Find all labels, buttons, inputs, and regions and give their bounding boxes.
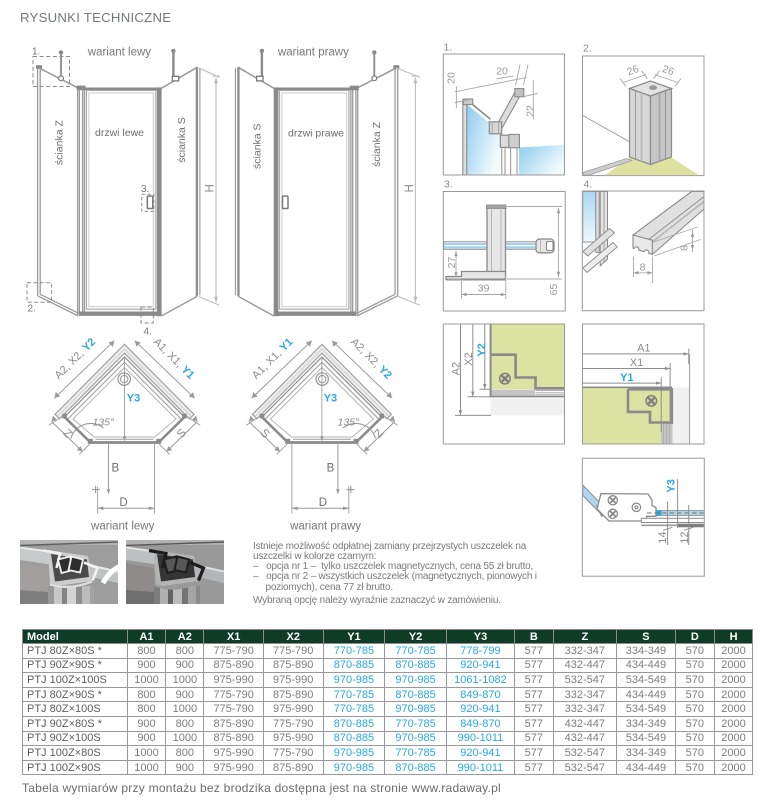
svg-text:14: 14 [657,531,669,543]
svg-text:drzwi prawe: drzwi prawe [288,128,344,140]
svg-text:3.: 3. [141,184,149,195]
svg-text:wariant lewy: wariant lewy [87,47,152,59]
svg-text:H: H [205,184,217,192]
svg-text:Y3: Y3 [127,393,140,405]
svg-text:ścianka S: ścianka S [176,117,188,163]
svg-text:ścianka Z: ścianka Z [371,121,383,167]
svg-text:wariant lewy: wariant lewy [90,521,155,533]
svg-text:A1: A1 [637,343,650,355]
svg-text:20: 20 [446,72,458,84]
svg-text:8: 8 [679,245,691,251]
svg-text:D: D [319,497,327,509]
svg-text:X2: X2 [463,352,475,365]
svg-text:A2, X2, Y2: A2, X2, Y2 [53,336,99,382]
svg-text:4.: 4. [144,327,152,338]
svg-text:Y3: Y3 [666,479,678,492]
svg-text:12: 12 [679,531,691,543]
svg-text:ścianka S: ścianka S [252,123,264,169]
svg-text:135°: 135° [93,417,115,429]
svg-text:Z: Z [60,427,73,440]
svg-text:D: D [119,497,127,509]
svg-text:8: 8 [640,262,646,274]
svg-text:A2, X2, Y2: A2, X2, Y2 [348,336,394,382]
svg-text:Y3: Y3 [324,393,337,405]
svg-text:27: 27 [446,257,458,269]
svg-text:S: S [175,427,189,441]
svg-text:65: 65 [548,284,560,296]
svg-text:B: B [327,462,335,474]
svg-text:A2: A2 [451,362,463,375]
svg-text:A1, X1, Y1: A1, X1, Y1 [151,336,197,382]
svg-text:wariant prawy: wariant prawy [277,47,349,59]
svg-text:A1, X1, Y1: A1, X1, Y1 [250,336,296,382]
svg-text:Y1: Y1 [620,372,633,384]
svg-text:drzwi lewe: drzwi lewe [95,127,144,139]
svg-text:3.: 3. [444,179,453,191]
svg-text:2.: 2. [583,43,592,55]
svg-text:4.: 4. [584,179,593,191]
svg-text:1.: 1. [32,47,40,58]
svg-text:B: B [112,462,120,474]
svg-text:1.: 1. [444,42,453,54]
svg-text:S: S [258,427,272,441]
svg-text:ścianka Z: ścianka Z [54,120,66,166]
svg-text:X1: X1 [630,357,643,369]
svg-text:20: 20 [496,66,508,78]
svg-text:39: 39 [478,283,490,295]
svg-text:22: 22 [525,105,537,117]
svg-text:Y2: Y2 [476,343,488,356]
svg-text:H: H [404,184,416,192]
svg-text:2.: 2. [28,304,36,315]
svg-text:wariant prawy: wariant prawy [289,521,361,533]
svg-text:Z: Z [373,427,386,440]
svg-text:135°: 135° [338,417,360,429]
